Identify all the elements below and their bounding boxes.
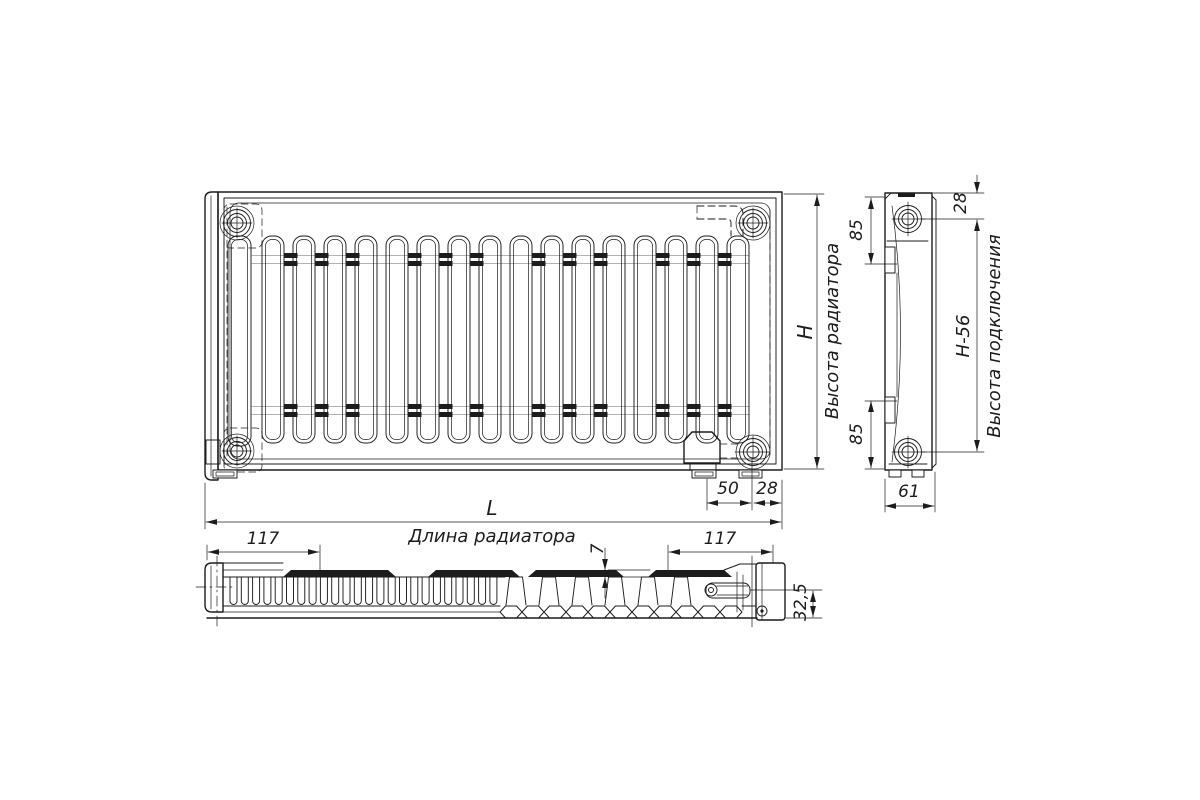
dim-pipe-axis-height: 32,5	[791, 583, 811, 621]
dim-length-symbol: L	[486, 496, 497, 520]
front-tie-bars	[285, 253, 732, 417]
dim-side-port-bottom-inset: 85	[847, 423, 867, 445]
front-ribs	[262, 236, 749, 443]
front-valve-block	[206, 432, 762, 478]
dim-connection-height-label: Высота подключения	[984, 234, 1005, 438]
dim-height-symbol: H	[793, 324, 817, 339]
front-left-cap	[205, 192, 218, 480]
dim-connection-height-value: H-56	[953, 315, 974, 358]
side-bracket-tab-top	[885, 247, 895, 273]
front-tie-lines	[252, 256, 749, 415]
drawing-svg: H Высота радиатора H-56 Высота подключен…	[0, 0, 1200, 800]
side-body	[885, 193, 932, 470]
dim-port-to-edge: 28	[756, 479, 778, 499]
bottom-channel-fins	[506, 577, 691, 605]
front-frame	[218, 192, 782, 470]
bottom-base-strip	[207, 606, 757, 618]
dim-side-top-offset: 28	[951, 192, 971, 214]
front-corner-ports	[220, 206, 770, 469]
bottom-left-cap	[205, 563, 223, 612]
dim-bracket-to-port: 50	[717, 479, 739, 499]
dim-length-label: Длина радиатора	[407, 526, 575, 547]
dim-side-port-top-inset: 85	[847, 219, 867, 241]
dim-bracket-offset-left: 117	[247, 529, 280, 549]
dim-side-depth: 61	[898, 482, 920, 502]
bottom-convector-fins	[230, 577, 497, 605]
bottom-view	[196, 556, 785, 629]
dim-bracket-offset-right: 117	[704, 529, 737, 549]
dim-plate-thickness: 7	[588, 543, 608, 554]
front-left-channel	[228, 236, 251, 446]
bottom-hexagon-chain	[500, 606, 742, 618]
radiator-technical-drawing: H Высота радиатора H-56 Высота подключен…	[0, 0, 1200, 800]
side-view	[885, 193, 936, 477]
bottom-top-plates	[283, 564, 757, 577]
front-view	[205, 192, 782, 480]
dim-height-label: Высота радиатора	[822, 243, 843, 419]
